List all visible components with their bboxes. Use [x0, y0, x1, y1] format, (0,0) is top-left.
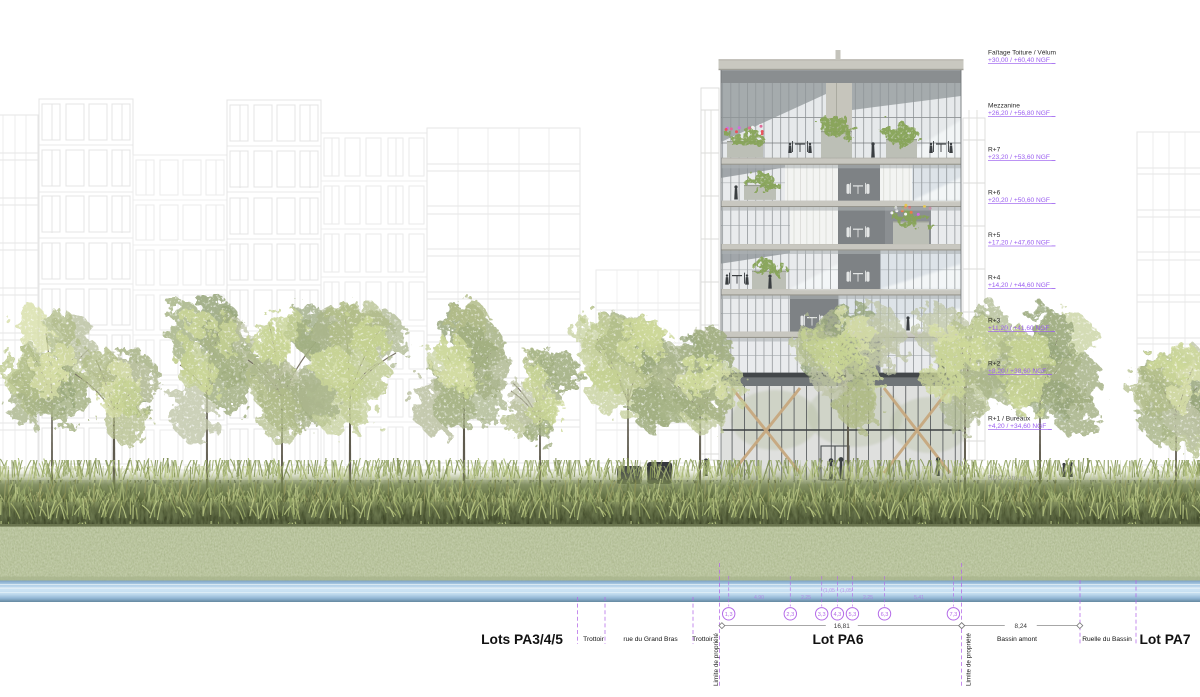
svg-text:Limite de propriété: Limite de propriété: [713, 633, 720, 686]
svg-text:Lots PA3/4/5: Lots PA3/4/5: [481, 632, 563, 647]
svg-text:Lot PA6: Lot PA6: [812, 632, 863, 647]
svg-text:Bassin amont: Bassin amont: [997, 636, 1037, 643]
svg-text:R+6: R+6: [988, 190, 1001, 197]
svg-text:(1,05: (1,05: [840, 588, 852, 594]
svg-text:+4,20 / +34,60 NGF _: +4,20 / +34,60 NGF _: [988, 423, 1052, 430]
svg-text:2,25: 2,25: [801, 595, 811, 601]
svg-text:R+3: R+3: [988, 318, 1001, 325]
svg-text:Ruelle du Bassin: Ruelle du Bassin: [1082, 636, 1132, 643]
svg-text:+17,20 / +47,60 NGF _: +17,20 / +47,60 NGF _: [988, 240, 1056, 247]
svg-text:3,3: 3,3: [818, 612, 826, 618]
svg-text:+20,20 / +50,60 NGF _: +20,20 / +50,60 NGF _: [988, 197, 1056, 204]
svg-text:+11,20 / +41,60 NGF _: +11,20 / +41,60 NGF _: [988, 325, 1055, 332]
svg-text:R+1 / Bureaux: R+1 / Bureaux: [988, 416, 1031, 423]
svg-text:Trottoir: Trottoir: [692, 636, 713, 643]
svg-text:+26,20 / +56,80 NGF _: +26,20 / +56,80 NGF _: [988, 110, 1056, 117]
svg-text:R+2: R+2: [988, 361, 1001, 368]
svg-text:R+4: R+4: [988, 275, 1001, 282]
svg-text:Trottoir: Trottoir: [583, 636, 604, 643]
svg-text:+23,20 / +53,60 NGF _: +23,20 / +53,60 NGF _: [988, 154, 1056, 161]
svg-text:5,3: 5,3: [849, 612, 857, 618]
svg-text:+30,00 / +60,40 NGF _: +30,00 / +60,40 NGF _: [988, 57, 1056, 64]
svg-text:4,3: 4,3: [834, 612, 842, 618]
svg-text:Lot PA7: Lot PA7: [1139, 632, 1190, 647]
svg-text:4,90: 4,90: [754, 595, 764, 601]
svg-text:+14,20 / +44,60 NGF _: +14,20 / +44,60 NGF _: [988, 282, 1056, 289]
svg-text:Limite de propriété: Limite de propriété: [966, 633, 973, 686]
svg-text:2,25: 2,25: [863, 595, 873, 601]
svg-text:RDC / Atrium: RDC / Atrium: [988, 475, 1027, 482]
svg-text:R+7: R+7: [988, 147, 1001, 154]
svg-text:8,24: 8,24: [1015, 623, 1028, 630]
svg-text:Faîtage Toiture / Vélum: Faîtage Toiture / Vélum: [988, 50, 1057, 57]
svg-text:6,3: 6,3: [881, 612, 889, 618]
svg-text:1,3: 1,3: [725, 612, 733, 618]
svg-text:(1,05: (1,05: [823, 588, 835, 594]
svg-text:+8,20 / +38,60 NGF _: +8,20 / +38,60 NGF _: [988, 368, 1052, 375]
svg-text:R+5: R+5: [988, 232, 1001, 239]
svg-text:7,3: 7,3: [950, 612, 958, 618]
svg-text:16,81: 16,81: [834, 623, 850, 630]
svg-text:rue du Grand Bras: rue du Grand Bras: [623, 636, 678, 643]
svg-text:5,41: 5,41: [914, 595, 924, 601]
svg-text:Mezzanine: Mezzanine: [988, 103, 1020, 110]
svg-text:2,3: 2,3: [786, 612, 794, 618]
